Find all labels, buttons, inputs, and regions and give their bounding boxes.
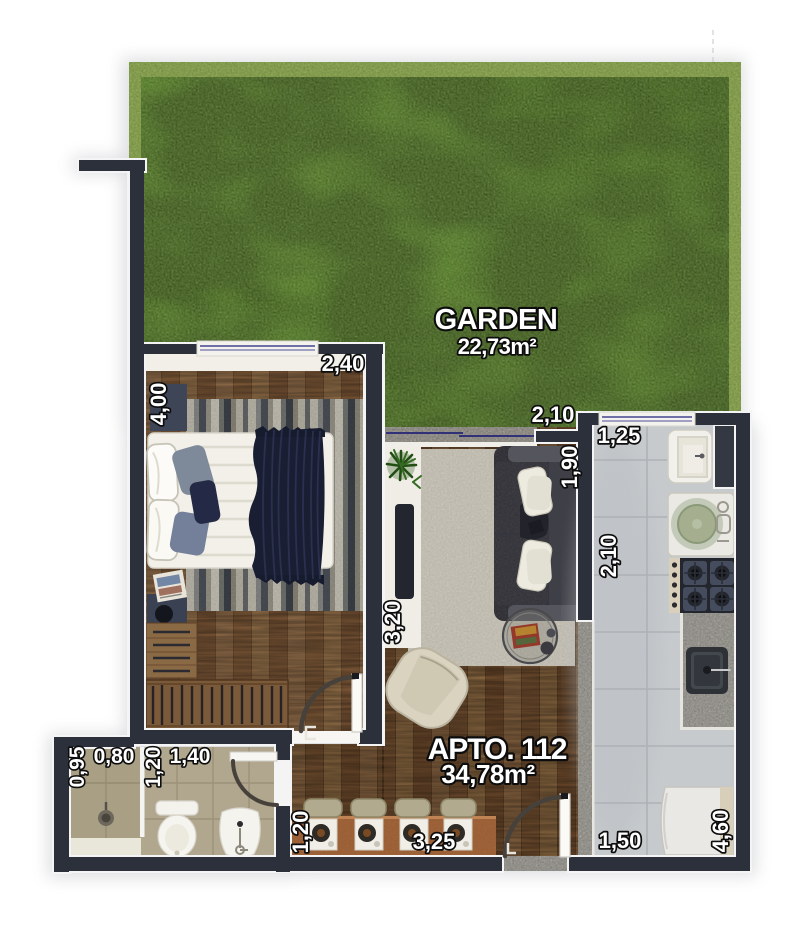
svg-text:GARDEN: GARDEN	[435, 304, 558, 336]
svg-text:1,90: 1,90	[557, 446, 582, 489]
svg-text:1,40: 1,40	[170, 745, 211, 768]
svg-text:3,20: 3,20	[380, 601, 405, 644]
svg-text:1,50: 1,50	[599, 828, 642, 853]
svg-text:0,80: 0,80	[94, 745, 135, 768]
svg-text:4,00: 4,00	[146, 383, 171, 426]
svg-text:22,73m²: 22,73m²	[458, 334, 537, 359]
svg-text:1,25: 1,25	[598, 423, 641, 448]
svg-text:3,25: 3,25	[413, 829, 456, 854]
svg-text:2,10: 2,10	[596, 535, 621, 578]
svg-text:2,10: 2,10	[532, 402, 575, 427]
svg-text:4,60: 4,60	[708, 810, 733, 853]
svg-text:2,40: 2,40	[322, 351, 365, 376]
svg-text:0,95: 0,95	[66, 746, 89, 787]
svg-text:34,78m²: 34,78m²	[441, 759, 535, 789]
svg-text:1,20: 1,20	[288, 811, 313, 854]
svg-text:1,20: 1,20	[142, 747, 165, 788]
